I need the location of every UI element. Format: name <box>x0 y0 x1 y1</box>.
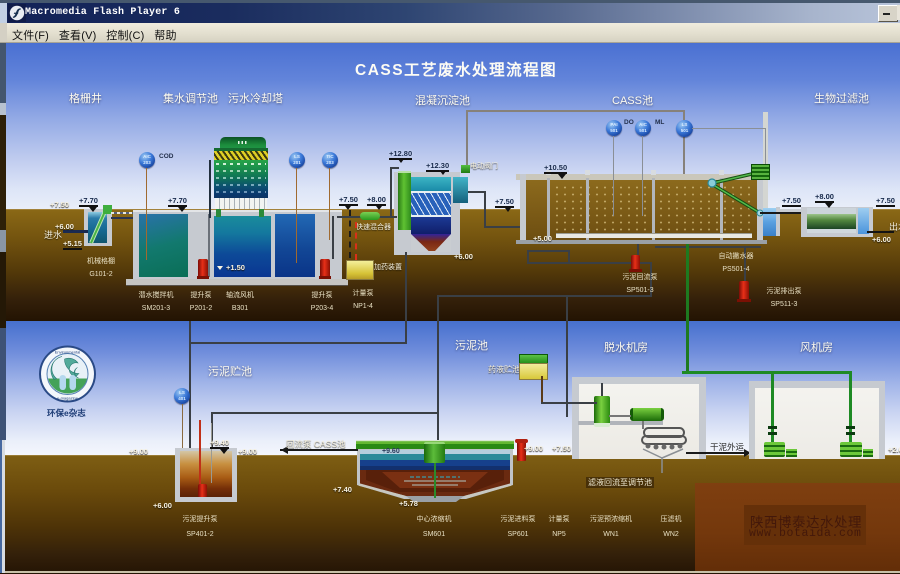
svg-text:e-magazine: e-magazine <box>57 396 79 401</box>
svg-text:Environmental: Environmental <box>55 350 81 355</box>
